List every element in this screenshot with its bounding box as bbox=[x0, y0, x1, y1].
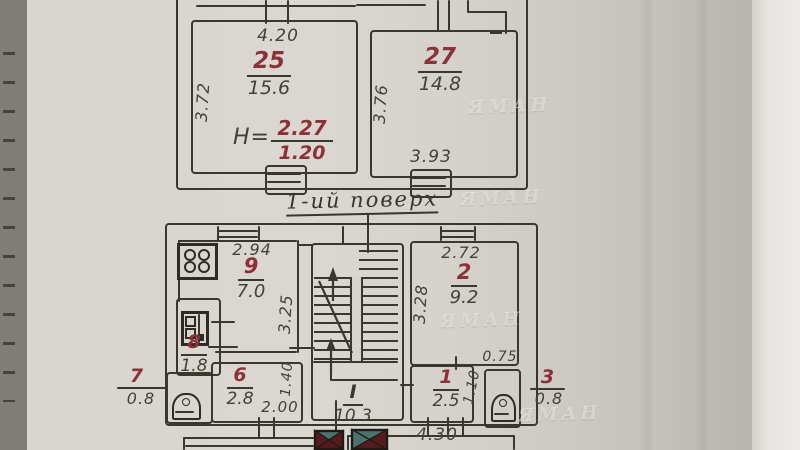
wall-line bbox=[175, 411, 194, 413]
porch-7-number: 7 bbox=[121, 367, 153, 386]
room-number: 2 bbox=[451, 262, 478, 287]
stove-burner bbox=[198, 261, 210, 273]
wall-line bbox=[513, 435, 515, 450]
paper-crease bbox=[695, 0, 711, 450]
room-area: 2.8 bbox=[217, 389, 263, 408]
dim-room27-width: 3.93 bbox=[404, 149, 458, 166]
wall-line bbox=[183, 437, 185, 450]
room-number: 25 bbox=[247, 50, 291, 77]
wall-line bbox=[440, 236, 474, 238]
wall-line bbox=[267, 173, 301, 175]
door-tick bbox=[211, 321, 235, 323]
room-25-label: 25 15.6 bbox=[240, 50, 298, 98]
wall-line bbox=[267, 181, 301, 183]
door-tick bbox=[289, 347, 315, 349]
height-lower-value: 1.20 bbox=[270, 142, 334, 163]
paper-crease bbox=[640, 0, 656, 450]
dim-room2-width: 2.72 bbox=[435, 245, 487, 261]
wall-line bbox=[347, 435, 349, 450]
wall-line bbox=[217, 226, 219, 241]
wall-line bbox=[440, 230, 474, 232]
plan-graphic bbox=[326, 338, 336, 351]
wall-line bbox=[356, 4, 426, 6]
stove-burner bbox=[184, 261, 196, 273]
wall-line bbox=[440, 226, 442, 241]
wall-line bbox=[217, 230, 258, 232]
dim-annex-width: 4.30 bbox=[409, 427, 465, 444]
room-8-label: 8 1.8 bbox=[173, 333, 215, 375]
wall-line bbox=[185, 445, 314, 447]
room-area: 15.6 bbox=[240, 77, 298, 98]
wall-line bbox=[437, 0, 439, 31]
floor-caption: 1-ий поверх bbox=[286, 186, 439, 216]
dim-room27-height: 3.76 bbox=[371, 80, 390, 127]
stove-burner bbox=[198, 249, 210, 261]
dim-room25-width: 4.20 bbox=[250, 28, 306, 45]
room-number: 6 bbox=[227, 366, 252, 389]
room-number: 1 bbox=[433, 368, 458, 391]
chimney-flue-icon bbox=[314, 430, 344, 450]
wall-line bbox=[196, 5, 356, 7]
toilet-icon bbox=[491, 394, 516, 422]
wall-line bbox=[273, 417, 275, 438]
height-upper-value: 2.27 bbox=[271, 118, 332, 142]
scanned-floor-plan-photo: 4.20 25 15.6 3.72 H= 2.27 1.20 27 14.8 3… bbox=[0, 0, 800, 450]
wall-line bbox=[183, 437, 315, 439]
porch-3-area: 0.8 bbox=[532, 391, 566, 407]
dim-room6-depth: 1.40 bbox=[279, 360, 296, 399]
room-number: 9 bbox=[238, 256, 265, 281]
plan-graphic bbox=[319, 281, 352, 353]
dim-room2-height: 3.28 bbox=[411, 280, 430, 327]
room-area: 14.8 bbox=[412, 73, 468, 94]
binding-stitch-marks bbox=[3, 52, 15, 402]
ceiling-height-value: 2.27 1.20 bbox=[270, 118, 334, 163]
porch-3-number: 3 bbox=[533, 368, 563, 387]
wall-line bbox=[494, 413, 509, 415]
chimney-flue-icon bbox=[351, 429, 388, 450]
dim-shaft-width: 0.75 bbox=[482, 350, 518, 364]
room-number: 27 bbox=[418, 46, 462, 73]
wall-line bbox=[448, 0, 450, 31]
room-number: I bbox=[343, 383, 362, 406]
toilet-tank bbox=[182, 398, 190, 406]
ceiling-height-label: H= bbox=[233, 127, 267, 149]
porch-7-area: 0.8 bbox=[124, 391, 158, 407]
door-tick bbox=[208, 346, 238, 348]
wall-line bbox=[217, 236, 258, 238]
wall-line bbox=[467, 11, 507, 13]
room-number: 8 bbox=[181, 333, 206, 356]
wall-line bbox=[474, 226, 476, 241]
toilet-tank bbox=[499, 399, 507, 407]
room-area: 9.2 bbox=[440, 287, 488, 307]
wall-line bbox=[258, 226, 260, 241]
underlying-page-edge bbox=[752, 0, 800, 450]
room-area: 7.0 bbox=[227, 281, 275, 301]
plan-graphic bbox=[328, 267, 338, 281]
toilet-icon bbox=[172, 393, 201, 420]
boiler-cell bbox=[185, 316, 196, 327]
stove-burner bbox=[184, 249, 196, 261]
dim-room25-height: 3.72 bbox=[193, 78, 212, 125]
room-27-label: 27 14.8 bbox=[412, 46, 468, 94]
room-6-label: 6 2.8 bbox=[217, 366, 263, 408]
dim-room9-height: 3.25 bbox=[276, 291, 295, 336]
wall-line bbox=[215, 351, 297, 353]
wall-line bbox=[297, 240, 299, 353]
dim-room6-width: 2.00 bbox=[258, 400, 302, 415]
wall-line bbox=[258, 417, 260, 438]
wall-line bbox=[412, 177, 446, 179]
stove-icon bbox=[177, 243, 218, 280]
room-2-label: 2 9.2 bbox=[440, 262, 488, 307]
room-9-label: 9 7.0 bbox=[227, 256, 275, 301]
